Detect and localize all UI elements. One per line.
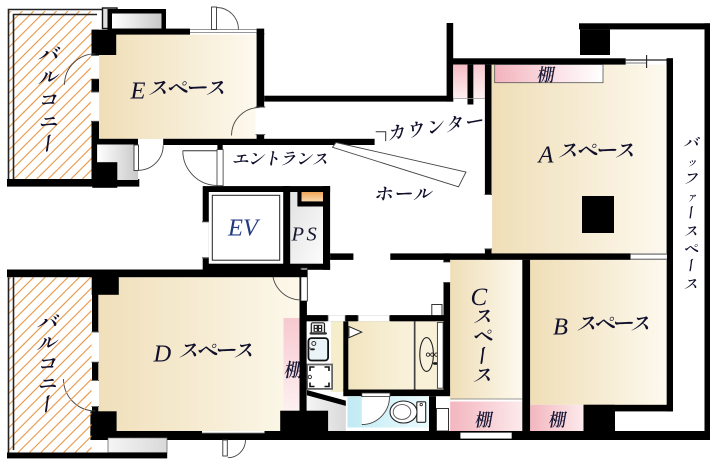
svg-text:EV: EV — [227, 215, 261, 242]
svg-text:A: A — [537, 142, 555, 169]
svg-text:C: C — [471, 284, 488, 311]
svg-text:D: D — [153, 341, 172, 368]
svg-text:P: P — [291, 224, 305, 246]
svg-text:B: B — [553, 314, 568, 341]
svg-text:E: E — [130, 78, 146, 105]
svg-text:S: S — [307, 224, 317, 246]
